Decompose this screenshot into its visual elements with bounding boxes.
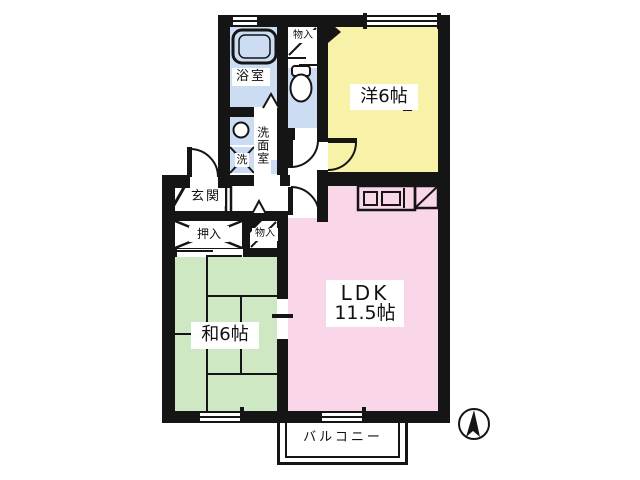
- refrigerator-diagonal: [415, 186, 438, 208]
- sink-circle-icon: [234, 123, 249, 138]
- storage-middle-label: 物入: [252, 228, 278, 241]
- balcony-label: バルコニー: [297, 429, 389, 446]
- western-corner-wedge: [328, 21, 341, 43]
- closet-label: 押入: [189, 226, 229, 242]
- ldk-door-leaf: [288, 187, 293, 215]
- room-washroom-label: 洗面室: [254, 116, 271, 174]
- kitchen-counter-icon: [358, 186, 415, 210]
- ldk-label-text: LDK: [341, 283, 390, 304]
- floorplan-canvas: 洋6帖 LDK 11.5帖 和6帖 浴室 洗面室 洗 玄関 押入 物入 物入 バ…: [0, 0, 640, 480]
- room-ldk-label: LDK 11.5帖: [326, 280, 404, 327]
- room-bathroom-label: 浴室: [232, 68, 270, 86]
- western-door-arc: [328, 142, 356, 170]
- room-japanese-label: 和6帖: [191, 322, 259, 349]
- entrance-label: 玄関: [187, 188, 225, 206]
- toilet-door-leaf: [288, 140, 293, 168]
- symbol-overlay: [0, 0, 640, 480]
- washroom-door-wedge: [252, 201, 266, 214]
- entrance-step-line: [170, 184, 186, 212]
- entrance-door-arc: [190, 149, 218, 177]
- washing-machine-label: 洗: [235, 153, 249, 167]
- kitchen-sink-icon: [364, 192, 377, 205]
- western-door-leaf: [328, 138, 357, 143]
- storage-top-label: 物入: [290, 30, 316, 43]
- room-western-label: 洋6帖: [350, 84, 418, 110]
- ldk-size-text: 11.5帖: [334, 304, 395, 324]
- entrance-door-leaf: [187, 147, 192, 177]
- bathroom-door-fold-icon: [263, 94, 279, 108]
- kitchen-stove-icon: [382, 192, 400, 205]
- ldk-door-arc: [291, 187, 319, 215]
- toilet-door-arc: [291, 140, 318, 167]
- toilet-icon-bowl: [291, 75, 312, 102]
